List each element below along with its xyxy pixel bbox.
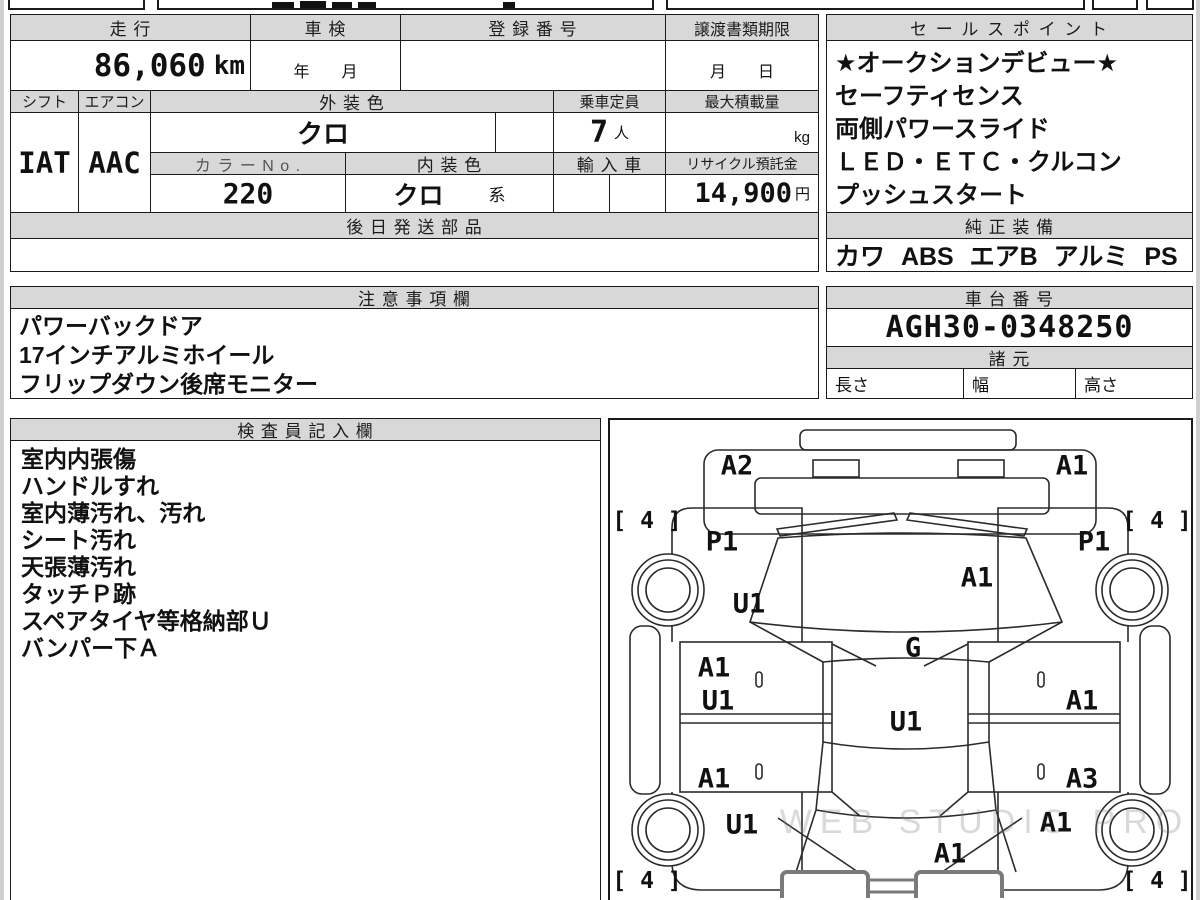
interior-color-value-cell: クロ 系 — [345, 174, 554, 213]
side-rail-right — [1140, 626, 1170, 794]
damage-label: P1 — [1078, 527, 1111, 558]
chassis-header: 車 台 番 号 — [826, 286, 1193, 309]
crease-front-left — [832, 644, 876, 666]
sales-point-item: 両側パワースライド — [835, 113, 1184, 146]
note-item: 17インチアルミホイール — [19, 341, 810, 370]
tire-mark: [ 4 ] — [1122, 508, 1191, 534]
top-cut-cell — [157, 0, 654, 10]
front-panel — [704, 450, 1096, 534]
rear-lamp-right — [916, 872, 1002, 898]
genuine-equipment-header: 純 正 装 備 — [826, 212, 1193, 239]
import-header: 輸 入 車 — [553, 152, 666, 175]
sales-points-header: セ ー ル ス ポ イ ン ト — [826, 14, 1193, 41]
damage-diagram-box: WEB STUDIO PRO A2 A1 P1 P1 A1 U1 G A1 U1… — [608, 418, 1193, 900]
damage-label: U1 — [890, 707, 923, 738]
inspector-item: 天張薄汚れ — [21, 554, 590, 581]
mileage-value-cell: 86,060 km — [10, 40, 251, 91]
inspector-list: 室内内張傷 ハンドルすれ 室内薄汚れ、汚れ シート汚れ 天張薄汚れ タッチＰ跡 … — [10, 440, 601, 900]
later-shipping-header: 後 日 発 送 部 品 — [10, 212, 819, 239]
recycle-value-cell: 14,900 円 — [665, 174, 819, 213]
sales-point-item: セーフティセンス — [835, 80, 1184, 113]
spec-height-cell: 高さ — [1075, 368, 1193, 399]
damage-label: P1 — [706, 527, 739, 558]
windshield — [750, 533, 1062, 632]
later-shipping-value-cell — [10, 238, 819, 272]
watermark: WEB STUDIO PRO — [780, 803, 1190, 841]
inspector-item: 室内薄汚れ、汚れ — [21, 500, 590, 527]
exterior-color-code-cell — [495, 112, 554, 153]
inspector-item: シート汚れ — [21, 527, 590, 554]
recycle-value: 14,900 — [694, 178, 792, 209]
front-wheel-left — [632, 554, 704, 626]
damage-label: A1 — [961, 563, 994, 594]
capacity-header: 乗車定員 — [553, 90, 666, 113]
tire-mark: [ 4 ] — [612, 868, 681, 894]
top-cut-cell — [1092, 0, 1138, 10]
capacity-value: 7 — [590, 115, 608, 150]
interior-color-suffix: 系 — [489, 181, 506, 206]
damage-label: U1 — [702, 686, 735, 717]
door-handle — [756, 764, 762, 779]
door-handle — [1038, 764, 1044, 779]
inspector-item: 室内内張傷 — [21, 446, 590, 473]
top-cut-cell — [1146, 0, 1194, 10]
transfer-value-cell: 月 日 — [665, 40, 819, 91]
capacity-value-cell: 7 人 — [553, 112, 666, 153]
interior-color-header: 内 装 色 — [345, 152, 554, 175]
sales-points-list: ★オークションデビュー★ セーフティセンス 両側パワースライド ＬＥＤ・ＥＴＣ・… — [826, 40, 1193, 213]
inspection-value-cell: 年 月 — [250, 40, 401, 91]
notes-list: パワーバックドア 17インチアルミホイール フリップダウン後席モニター — [10, 308, 819, 399]
cut-text-fragment — [332, 2, 352, 8]
mileage-value: 86,060 — [94, 48, 206, 84]
damage-label: A2 — [721, 451, 754, 482]
cut-text-fragment — [300, 1, 326, 8]
shift-value: IAT — [10, 112, 79, 213]
damage-label: A1 — [698, 764, 731, 795]
front-bumper-top-strip — [800, 430, 1016, 450]
damage-label: A1 — [1040, 808, 1073, 839]
max-load-value-cell: kg — [665, 112, 819, 153]
recycle-header: リサイクル預託金 — [665, 152, 819, 175]
headlight-left — [813, 460, 859, 477]
car-damage-diagram: WEB STUDIO PRO A2 A1 P1 P1 A1 U1 G A1 U1… — [610, 420, 1191, 898]
headlight-right — [958, 460, 1004, 477]
transfer-deadline-header: 譲渡書類期限 — [665, 14, 819, 41]
door-handle — [756, 672, 762, 687]
sales-point-item: ＬＥＤ・ＥＴＣ・クルコン — [835, 146, 1184, 179]
rear-lamp-left — [782, 872, 868, 898]
damage-label: A1 — [934, 839, 967, 870]
import-value-cell-2 — [609, 174, 666, 213]
color-no-header: カ ラ ー N o . — [150, 152, 346, 175]
spec-width-cell: 幅 — [963, 368, 1076, 399]
door-handle — [1038, 672, 1044, 687]
registration-header: 登 録 番 号 — [400, 14, 666, 41]
front-wheel-right — [1096, 554, 1168, 626]
rear-bumper-bar — [868, 880, 916, 892]
sales-point-item: ★オークションデビュー★ — [835, 47, 1184, 80]
left-edge-shade — [0, 0, 4, 900]
tire-mark: [ 4 ] — [612, 508, 681, 534]
damage-label: A1 — [1056, 451, 1089, 482]
inspection-header: 車 検 — [250, 14, 401, 41]
rear-window-right — [989, 742, 996, 810]
side-rail-left — [630, 626, 660, 794]
sales-point-item: プッシュスタート — [835, 179, 1184, 212]
aircon-header: エアコン — [78, 90, 151, 113]
mileage-unit: km — [214, 51, 245, 81]
auction-sheet: 走 行 車 検 登 録 番 号 譲渡書類期限 86,060 km 年 月 月 日… — [0, 0, 1200, 900]
exterior-color-value: クロ — [150, 112, 496, 153]
inspector-item: タッチＰ跡 — [21, 581, 590, 608]
inspector-item: バンパー下Ａ — [21, 635, 590, 662]
rear-wheel-left — [632, 794, 704, 866]
damage-label: A3 — [1066, 764, 1099, 795]
shift-header: シフト — [10, 90, 79, 113]
notes-header: 注 意 事 項 欄 — [10, 286, 819, 309]
aircon-value: AAC — [78, 112, 151, 213]
import-value-cell-1 — [553, 174, 610, 213]
exterior-color-header: 外 装 色 — [150, 90, 554, 113]
mileage-header: 走 行 — [10, 14, 251, 41]
interior-color-value: クロ — [393, 176, 443, 212]
note-item: フリップダウン後席モニター — [19, 370, 810, 399]
rear-window-left — [816, 742, 823, 810]
specs-header: 諸 元 — [826, 346, 1193, 369]
max-load-unit: kg — [794, 129, 810, 146]
roof-rear-edge — [823, 742, 989, 749]
damage-label: U1 — [726, 810, 759, 841]
capacity-unit: 人 — [614, 122, 629, 143]
spec-length-cell: 長さ — [826, 368, 964, 399]
damage-label: U1 — [733, 589, 766, 620]
color-no-value: 220 — [150, 174, 346, 213]
cut-text-fragment — [358, 2, 376, 8]
registration-value-cell — [400, 40, 666, 91]
inspector-item: ハンドルすれ — [21, 473, 590, 500]
inspector-header: 検 査 員 記 入 欄 — [10, 418, 601, 441]
recycle-unit: 円 — [795, 183, 810, 204]
inspector-item: スペアタイヤ等格納部Ｕ — [21, 608, 590, 635]
top-cut-cell — [8, 0, 145, 10]
cut-text-fragment — [272, 2, 294, 8]
crease-front-right — [924, 644, 968, 666]
note-item: パワーバックドア — [19, 312, 810, 341]
damage-label: G — [905, 633, 921, 664]
damage-label: A1 — [1066, 686, 1099, 717]
top-cut-cell — [666, 0, 1085, 10]
tire-mark: [ 4 ] — [1122, 868, 1191, 894]
right-edge-shade — [1196, 0, 1200, 900]
cut-text-fragment — [503, 2, 515, 8]
damage-label: A1 — [698, 653, 731, 684]
max-load-header: 最大積載量 — [665, 90, 819, 113]
genuine-equipment-value: カワ ABS エアB アルミ PS PW — [826, 238, 1193, 272]
chassis-value: AGH30-0348250 — [826, 308, 1193, 347]
